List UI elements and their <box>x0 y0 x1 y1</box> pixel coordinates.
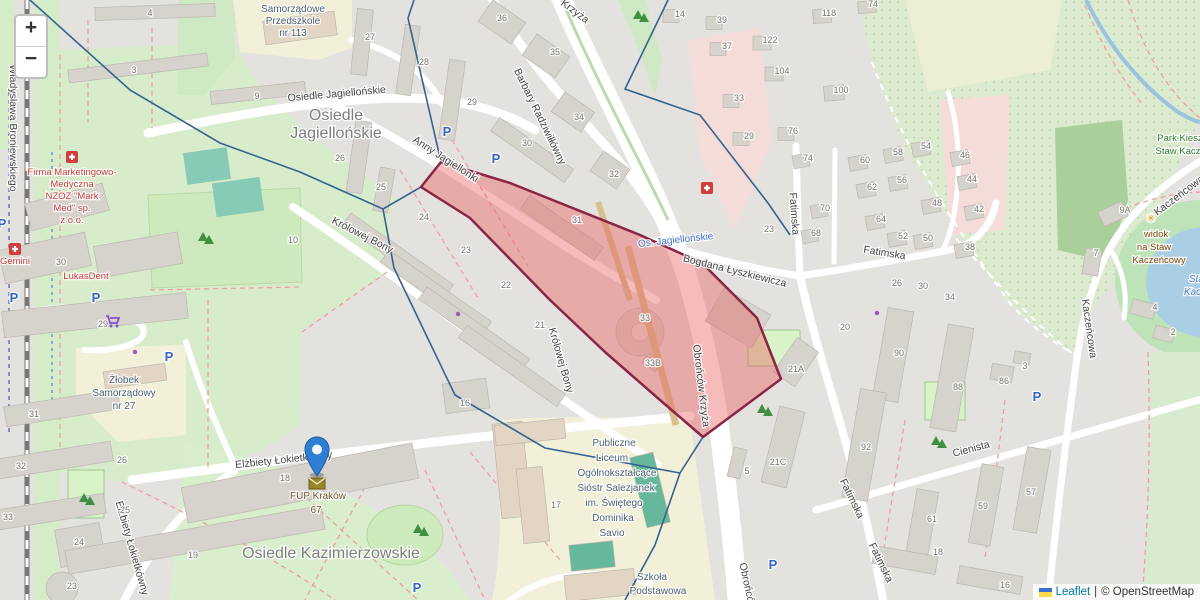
parking-icon: P <box>10 290 19 305</box>
building-number: 59 <box>978 501 988 511</box>
building-number: 70 <box>820 203 830 213</box>
leaflet-link[interactable]: Leaflet <box>1056 586 1091 598</box>
viewpoint-label: widok <box>1143 229 1169 240</box>
ukraine-flag-icon <box>1039 588 1052 597</box>
building-number: 37 <box>722 41 732 51</box>
building-number: 20 <box>840 322 850 332</box>
park-label: Staw Kacz <box>1156 146 1200 157</box>
viewpoint-label: Kaczeńcowy <box>1132 255 1186 266</box>
building-number: 58 <box>893 147 903 157</box>
school-label: Samorządowy <box>92 388 155 399</box>
building-number: 62 <box>867 182 877 192</box>
building-number: 25 <box>120 505 130 515</box>
school-label: nr 113 <box>279 28 307 39</box>
school-label: Liceum <box>596 453 628 464</box>
building-number: 10 <box>288 235 298 245</box>
water-label: Kaczeńcowy <box>1184 287 1200 298</box>
zoom-control: + − <box>14 14 48 79</box>
school-label: Sióstr Salezjanek <box>577 483 655 494</box>
building-number: 22 <box>501 280 511 290</box>
building-number: 33 <box>734 93 744 103</box>
water-label: Staw <box>1189 274 1200 285</box>
building-number: 18 <box>933 547 943 557</box>
building-number: 9 <box>254 91 259 101</box>
building-number: 60 <box>860 155 870 165</box>
building-number: 52 <box>898 231 908 241</box>
building-number: 122 <box>762 35 777 45</box>
building-number: 28 <box>419 57 429 67</box>
building-number: 16 <box>460 398 470 408</box>
medical-label: z o.o. <box>60 215 83 226</box>
building-number: 48 <box>932 198 942 208</box>
building-number: 30 <box>918 281 928 291</box>
building-number: 74 <box>803 153 813 163</box>
shop-dot-icon <box>456 312 460 316</box>
map-marker[interactable] <box>304 436 330 478</box>
school-label: im. Świętego <box>585 496 643 509</box>
parking-icon: P <box>769 557 778 572</box>
building-number: 4 <box>1152 302 1157 312</box>
building-number: 24 <box>419 212 429 222</box>
building-number: 9A <box>1119 205 1130 215</box>
building-number: 21C <box>770 457 787 467</box>
building-number: 24 <box>74 537 84 547</box>
building-number: 14 <box>675 9 685 19</box>
building-number: 38 <box>965 242 975 252</box>
area-label: Osiedle Kazimierzowskie <box>242 545 420 562</box>
building-number: 88 <box>953 382 963 392</box>
building-number: 34 <box>945 292 955 302</box>
building-number: 61 <box>927 514 937 524</box>
street-label: Władysława Broniewskiego <box>7 64 19 191</box>
building-number: 34 <box>574 112 584 122</box>
school-label: Żłobek <box>109 373 140 386</box>
building-number: 46 <box>960 150 970 160</box>
school-label: Dominika <box>592 513 634 524</box>
building-number: 23 <box>764 224 774 234</box>
building-number: 5 <box>744 466 749 476</box>
school-label: Przedszkole <box>266 16 321 27</box>
building-number: 57 <box>1026 487 1036 497</box>
parking-icon: P <box>492 151 501 166</box>
building-number: 32 <box>16 461 26 471</box>
building-number: 56 <box>897 175 907 185</box>
attribution-separator: | <box>1094 586 1097 598</box>
leaflet-map[interactable]: ✳PPPPPPPPP Władysława BroniewskiegoOsied… <box>0 0 1200 600</box>
building-number: 29 <box>98 319 108 329</box>
building-number: 7 <box>1093 248 1098 258</box>
building-number: 30 <box>522 138 532 148</box>
building-number: 32 <box>609 169 619 179</box>
building-number: 19 <box>188 550 198 560</box>
building-number: 31 <box>572 215 582 225</box>
building-number: 30 <box>56 257 66 267</box>
building-number: 23 <box>67 581 77 591</box>
school-label: Ogólnokształcące <box>578 468 657 479</box>
zoom-in-button[interactable]: + <box>16 16 46 47</box>
building-number: 29 <box>744 131 754 141</box>
parking-icon: P <box>92 290 101 305</box>
building-number: 26 <box>335 153 345 163</box>
building-number: 36 <box>497 13 507 23</box>
medical-label: LukasDent <box>63 271 109 282</box>
building-number: 26 <box>892 278 902 288</box>
building-number: 104 <box>774 66 789 76</box>
building-number: 26 <box>117 455 127 465</box>
parking-icon: P <box>165 349 174 364</box>
attribution-bar: Leaflet | © OpenStreetMap <box>1033 584 1200 600</box>
medical-label: Med" sp. <box>53 203 90 214</box>
building-number: 64 <box>876 214 886 224</box>
viewpoint-star-icon: ✳ <box>1146 213 1155 225</box>
building-number: 3 <box>1022 361 1027 371</box>
medical-label: NZOZ "Mark <box>46 191 99 202</box>
parking-icon: P <box>0 216 7 231</box>
building-number: 21 <box>535 320 545 330</box>
building-number: 31 <box>29 409 39 419</box>
post-label: FUP Kraków <box>290 491 347 502</box>
school-label: Podstawowa <box>630 586 687 597</box>
building <box>569 541 615 571</box>
building-number: 118 <box>822 8 836 18</box>
building-number: 29 <box>467 97 477 107</box>
osm-attribution: © OpenStreetMap <box>1101 586 1194 598</box>
building-number: 92 <box>861 442 871 452</box>
building-number: 17 <box>551 500 561 510</box>
building-number: 33 <box>3 512 13 522</box>
building-number: 68 <box>811 228 821 238</box>
building-number: 74 <box>868 0 878 9</box>
building-number: 27 <box>365 32 375 42</box>
school-label: Szkoła <box>637 572 667 583</box>
building-number: 42 <box>974 204 984 214</box>
shop-dot-icon <box>875 311 879 315</box>
post-label: 67 <box>310 505 322 516</box>
building-number: 21A <box>788 364 804 374</box>
map-tiles: ✳PPPPPPPPP Władysława BroniewskiegoOsied… <box>0 0 1200 600</box>
building-number: 18 <box>280 473 290 483</box>
parking-icon: P <box>1033 389 1042 404</box>
building-number: 44 <box>967 174 977 184</box>
zoom-out-button[interactable]: − <box>16 47 46 77</box>
parking-icon: P <box>443 124 452 139</box>
building-number: 25 <box>376 182 386 192</box>
building-number: 33B <box>645 358 661 368</box>
building-number: 86 <box>999 376 1009 386</box>
building-number: 23 <box>461 245 471 255</box>
viewpoint-label: na Staw <box>1137 242 1171 253</box>
building-number: 2 <box>1170 327 1175 337</box>
building-number: 54 <box>921 141 931 151</box>
shop-dot-icon <box>133 350 137 354</box>
building-number: 100 <box>833 85 848 95</box>
building-number: 4 <box>147 8 152 18</box>
school-label: Samorządowe <box>261 4 325 15</box>
medical-label: Gemini <box>0 256 30 267</box>
parking-icon: P <box>413 580 422 595</box>
building-number: 3 <box>131 65 136 75</box>
building-number: 16 <box>1000 580 1010 590</box>
area-label: Osiedle <box>309 107 363 124</box>
building-number: 33 <box>640 313 650 323</box>
medical-label: Firma Marketingowo- <box>27 167 116 178</box>
park-label: Park Kiesz <box>1157 133 1200 144</box>
area-label: Jagiellońskie <box>290 125 382 142</box>
building-number: 35 <box>550 47 560 57</box>
medical-label: Medyczna <box>50 179 94 190</box>
school-label: Publiczne <box>592 438 636 449</box>
building-number: 50 <box>923 233 933 243</box>
building-number: 90 <box>894 348 904 358</box>
school-label: Savio <box>599 528 624 539</box>
school-label: nr 27 <box>113 401 136 412</box>
building-number: 76 <box>788 126 798 136</box>
building-number: 39 <box>717 15 727 25</box>
